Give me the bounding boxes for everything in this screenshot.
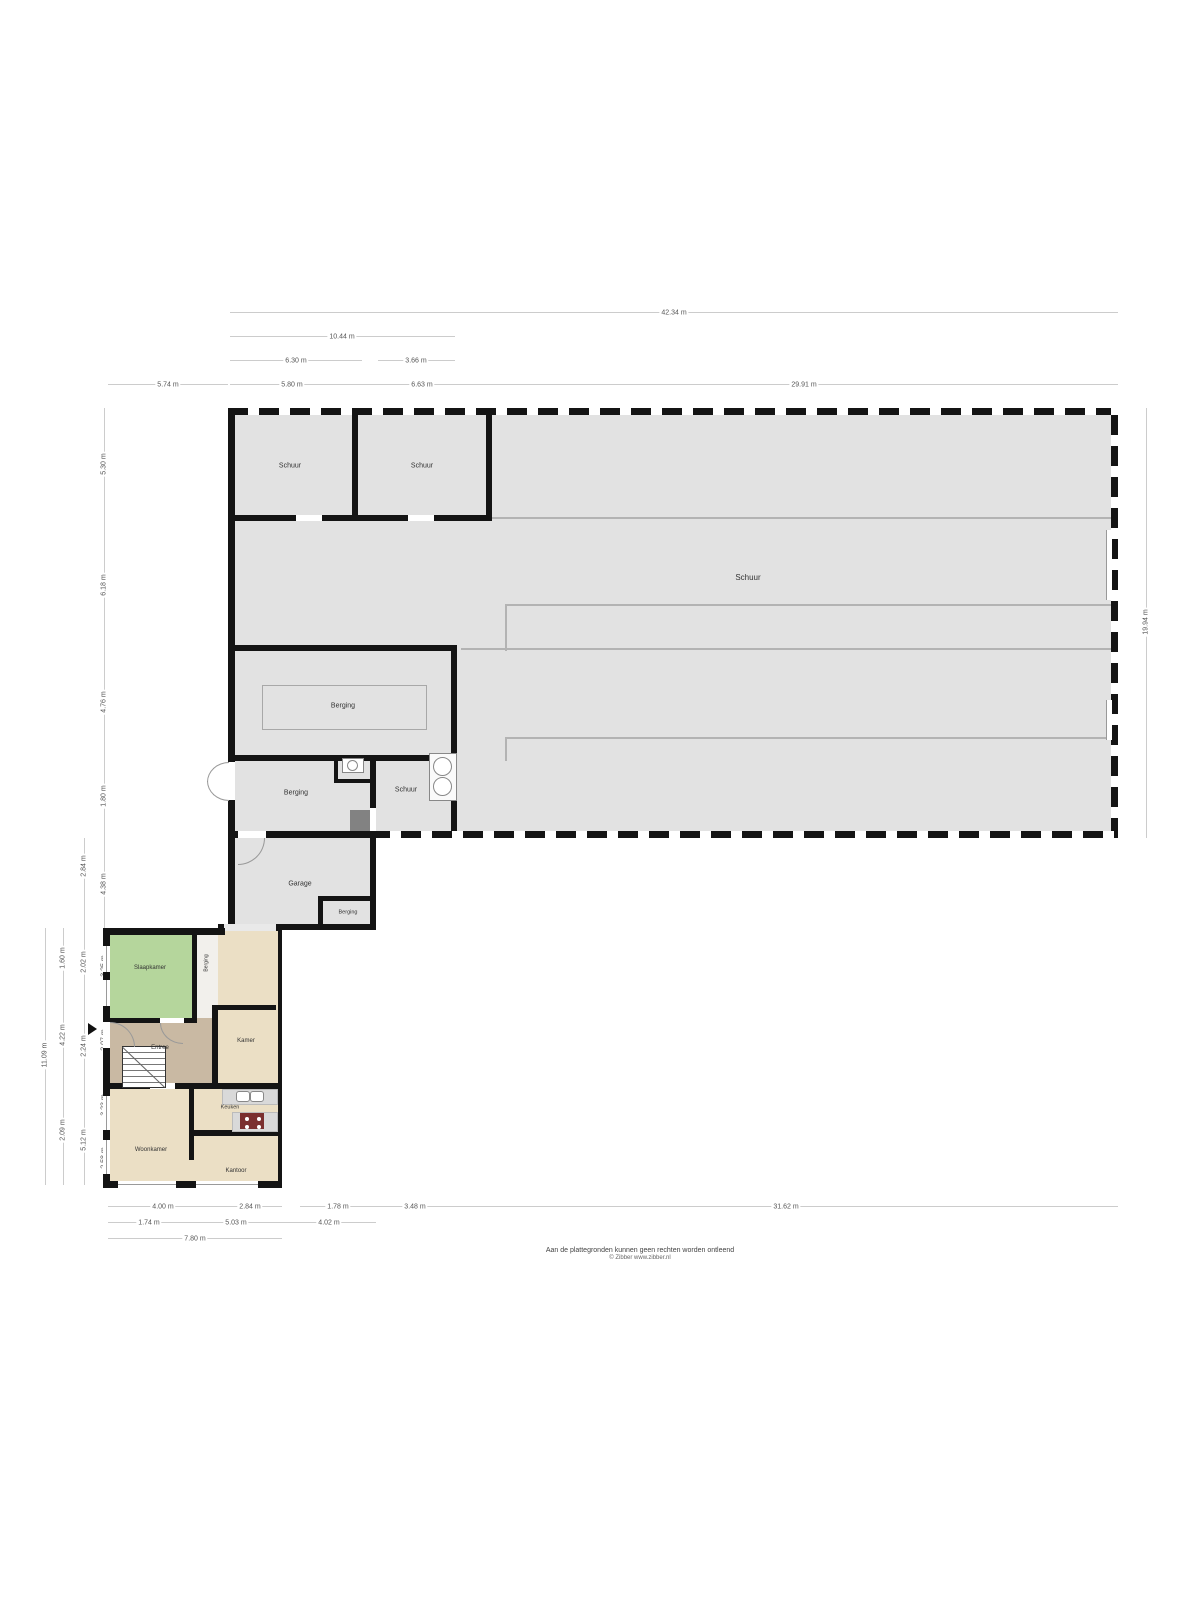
dimension-label: 1.60 m bbox=[60, 945, 67, 970]
door-opening bbox=[228, 762, 235, 781]
wall bbox=[334, 755, 338, 781]
wall bbox=[352, 408, 358, 521]
room-label: Berging bbox=[339, 910, 358, 916]
dimension-label: 3.48 m bbox=[402, 1204, 427, 1211]
sink-icon bbox=[250, 1091, 264, 1102]
disclaimer-text: Aan de plattegronden kunnen geen rechten… bbox=[546, 1246, 734, 1255]
room-label: Schuur bbox=[411, 463, 433, 470]
room-label: Berging bbox=[331, 703, 355, 710]
dimension-label: 5.80 m bbox=[279, 382, 304, 389]
room-label: Schuur bbox=[395, 787, 417, 794]
dimension-label: 2.02 m bbox=[81, 949, 88, 974]
room-label: Schuur bbox=[279, 463, 301, 470]
dimension-label: 2.09 m bbox=[60, 1117, 67, 1142]
dimension-label: 5.12 m bbox=[81, 1127, 88, 1152]
wall bbox=[370, 838, 376, 930]
wall bbox=[228, 645, 457, 651]
dimension-label: 7.80 m bbox=[182, 1236, 207, 1243]
stove-burners bbox=[245, 1117, 249, 1121]
wall bbox=[103, 928, 225, 935]
stairs-diagonal bbox=[122, 1047, 165, 1088]
entrance-arrow-icon bbox=[88, 1023, 97, 1035]
boiler-icon bbox=[433, 757, 452, 776]
room-label: Schuur bbox=[735, 574, 760, 582]
dimension-label: 1.74 m bbox=[136, 1220, 161, 1227]
wall bbox=[192, 935, 197, 1018]
dimension-label: 11.09 m bbox=[42, 1041, 49, 1070]
wall bbox=[451, 645, 457, 838]
wall-recess bbox=[1106, 700, 1112, 740]
window bbox=[103, 946, 110, 972]
dimension-label: 5.30 m bbox=[101, 451, 108, 476]
door-opening bbox=[103, 1022, 110, 1048]
sink-icon bbox=[236, 1091, 250, 1102]
copyright-text: © Zibber www.zibber.nl bbox=[546, 1255, 734, 1263]
dimension-label: 31.62 m bbox=[771, 1204, 800, 1211]
dimension-label: 1.80 m bbox=[101, 783, 108, 808]
wall-dashed bbox=[370, 831, 1118, 838]
boiler-icon bbox=[433, 777, 452, 796]
door-opening bbox=[408, 515, 434, 521]
window bbox=[103, 980, 110, 1006]
room-label: Slaapkamer bbox=[134, 965, 166, 971]
feed-lane-line bbox=[505, 604, 507, 651]
room-label: Entree bbox=[151, 1045, 169, 1051]
dimension-label: 10.44 m bbox=[327, 334, 356, 341]
dimension-label: 4.38 m bbox=[101, 871, 108, 896]
wall bbox=[318, 896, 323, 930]
wall bbox=[228, 515, 492, 521]
wall bbox=[228, 838, 235, 930]
room-label: Woonkamer bbox=[135, 1147, 167, 1153]
dimension-label: 1.78 m bbox=[325, 1204, 350, 1211]
door-opening bbox=[296, 515, 322, 521]
room-label: Garage bbox=[288, 881, 311, 888]
room-label: Berging bbox=[284, 790, 308, 797]
disclaimer: Aan de plattegronden kunnen geen rechten… bbox=[546, 1246, 734, 1263]
dimension-label: 3.66 m bbox=[403, 358, 428, 365]
room-label: Keuken bbox=[221, 1105, 240, 1111]
wall bbox=[212, 1005, 218, 1083]
dimension-label: 2.84 m bbox=[81, 853, 88, 878]
window bbox=[196, 1181, 258, 1188]
wall-dashed bbox=[1111, 408, 1118, 838]
wall bbox=[189, 1083, 194, 1135]
wall bbox=[334, 779, 374, 783]
dimension-label: 4.02 m bbox=[316, 1220, 341, 1227]
window bbox=[103, 1140, 110, 1174]
room-label: Kamer bbox=[237, 1038, 255, 1044]
feed-lane-line bbox=[505, 737, 507, 761]
door-opening bbox=[370, 808, 376, 831]
door-arc bbox=[207, 762, 229, 782]
dimension-label: 6.63 m bbox=[409, 382, 434, 389]
wall-dashed bbox=[228, 408, 1118, 415]
door-opening bbox=[228, 781, 235, 800]
room-label: Berging bbox=[205, 954, 210, 971]
wall-recess bbox=[1106, 530, 1112, 600]
wall bbox=[486, 408, 492, 521]
dimension-label: 4.76 m bbox=[101, 689, 108, 714]
toilet-bowl-icon bbox=[347, 760, 358, 771]
room-label: Kantoor bbox=[225, 1168, 246, 1174]
floorplan-canvas: 42.34 m 10.44 m 6.30 m 3.66 m 5.74 m 5.8… bbox=[0, 0, 1200, 1600]
dimension-label: 42.34 m bbox=[659, 310, 688, 317]
dimension-label: 6.18 m bbox=[101, 572, 108, 597]
wall bbox=[218, 1005, 276, 1010]
feed-lane-line bbox=[461, 648, 1111, 650]
dimension-label: 4.22 m bbox=[60, 1022, 67, 1047]
dimension-label: 19.94 m bbox=[1143, 607, 1150, 636]
duct-square bbox=[350, 810, 370, 831]
stairs-icon bbox=[122, 1046, 166, 1088]
slaapkamer-floor bbox=[110, 935, 192, 1018]
dimension-label: 4.00 m bbox=[150, 1204, 175, 1211]
window bbox=[118, 1181, 176, 1188]
barn-floor bbox=[228, 408, 1118, 838]
stove-icon bbox=[240, 1113, 264, 1129]
dimension-label: 5.03 m bbox=[223, 1220, 248, 1227]
dimension-label: 29.91 m bbox=[789, 382, 818, 389]
dimension-label: 2.24 m bbox=[81, 1033, 88, 1058]
dimension-label: 2.84 m bbox=[237, 1204, 262, 1211]
door-arc bbox=[207, 781, 229, 801]
wall bbox=[281, 924, 376, 930]
feed-lane-line bbox=[505, 737, 1111, 739]
window bbox=[103, 1096, 110, 1130]
feed-lane-line bbox=[505, 604, 1111, 606]
dimension-label: 5.74 m bbox=[155, 382, 180, 389]
door-opening bbox=[238, 831, 266, 838]
wall bbox=[318, 896, 375, 901]
wall bbox=[189, 1130, 194, 1160]
feed-lane-line bbox=[492, 517, 1111, 519]
dimension-label: 6.30 m bbox=[283, 358, 308, 365]
